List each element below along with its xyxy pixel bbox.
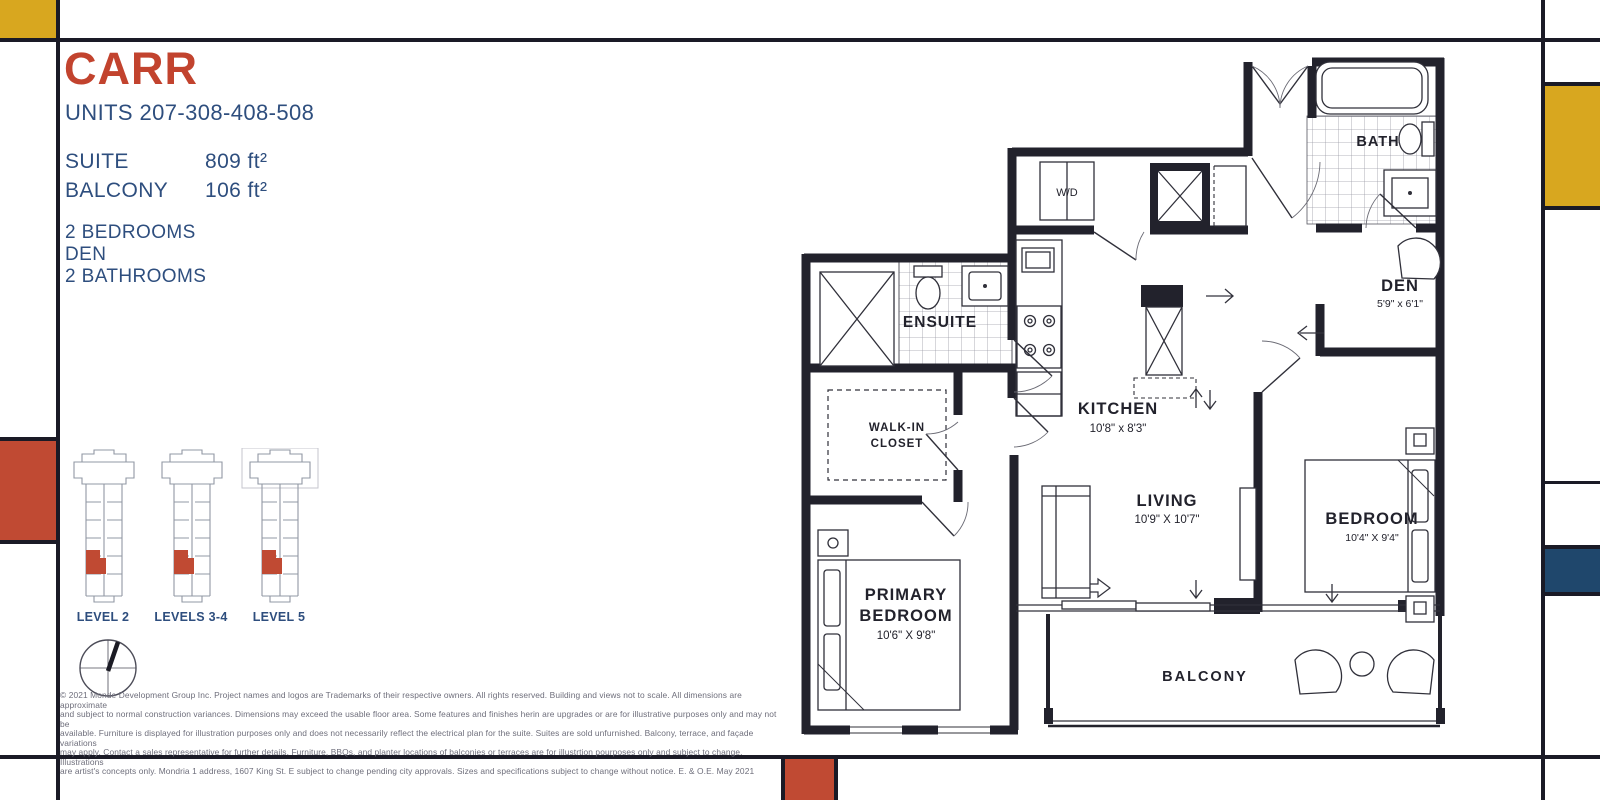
room-label-living: LIVING	[1136, 492, 1197, 510]
keyplan-level-2	[74, 450, 134, 602]
units-line: UNITS 207-308-408-508	[65, 100, 314, 126]
room-label-wd: W/D	[1056, 187, 1077, 199]
mondrian-square-yellow-right	[1545, 82, 1600, 210]
frame-line-left	[56, 0, 60, 800]
mondrian-square-blue-right	[1545, 545, 1600, 596]
feature-list: 2 BEDROOMS DEN 2 BATHROOMS	[65, 222, 206, 288]
keyplan-label-level-5: LEVEL 5	[236, 610, 322, 624]
den-chair	[1398, 238, 1440, 279]
balcony-chairs	[1295, 650, 1434, 694]
bathtub	[1316, 62, 1428, 114]
keyplan-diagrams	[64, 448, 324, 606]
room-label-primary-line1: PRIMARY	[865, 586, 947, 604]
room-dims-living: 10'9" X 10'7"	[1135, 514, 1200, 526]
sofa	[1042, 486, 1090, 598]
room-label-bath: BATH	[1356, 134, 1399, 150]
disclaimer-line: may apply. Contact a sales representativ…	[60, 748, 778, 767]
feature-den: DEN	[65, 244, 206, 266]
walkin-closet-outline	[828, 390, 946, 480]
kitchen-counter	[1016, 240, 1062, 416]
balcony-table	[1350, 652, 1374, 676]
disclaimer-line: available. Furniture is displayed for il…	[60, 729, 778, 748]
room-label-kitchen: KITCHEN	[1078, 400, 1158, 418]
keyplan-label-levels-3-4: LEVELS 3-4	[148, 610, 234, 624]
ensuite-sink	[962, 266, 1008, 306]
room-label-walkin-line1: WALK-IN	[869, 422, 925, 434]
room-label-walkin-line2: CLOSET	[871, 438, 924, 450]
balcony-area-value: 106 ft²	[205, 179, 267, 203]
area-stats: SUITE 809 ft² BALCONY 106 ft²	[65, 150, 267, 208]
balcony-area-row: BALCONY 106 ft²	[65, 179, 267, 203]
feature-bathrooms: 2 BATHROOMS	[65, 266, 206, 288]
room-dims-kitchen: 10'8" x 8'3"	[1090, 423, 1147, 435]
suite-area-label: SUITE	[65, 150, 205, 174]
mondrian-square-red-left	[0, 437, 56, 544]
bath-sink	[1384, 170, 1436, 216]
elevator-shaft	[1150, 163, 1210, 229]
kitchen-island	[1134, 285, 1196, 398]
keyplan-label-level-2: LEVEL 2	[60, 610, 146, 624]
legal-disclaimer: © 2021 Monde Development Group Inc. Proj…	[60, 691, 778, 777]
entry-closet	[1214, 166, 1246, 226]
room-label-den: DEN	[1381, 277, 1419, 295]
room-dims-den: 5'9" x 6'1"	[1377, 298, 1423, 310]
room-dims-bedroom: 10'4" X 9'4"	[1345, 532, 1399, 544]
ensuite-toilet	[914, 266, 942, 309]
mondrian-square-yellow-topleft	[0, 0, 56, 38]
room-dims-primary: 10'6" X 9'8"	[877, 630, 936, 642]
suite-area-row: SUITE 809 ft²	[65, 150, 267, 174]
keyplan-levels-3-4	[162, 450, 222, 602]
tv-console	[1240, 488, 1256, 580]
page-title: CARR	[64, 46, 198, 91]
room-label-ensuite: ENSUITE	[903, 314, 977, 331]
disclaimer-line: are artist's concepts only. Mondria 1 ad…	[60, 767, 778, 777]
disclaimer-line: © 2021 Monde Development Group Inc. Proj…	[60, 691, 778, 710]
room-label-balcony: BALCONY	[1162, 669, 1248, 685]
bath-toilet	[1399, 122, 1434, 156]
suite-area-value: 809 ft²	[205, 150, 267, 174]
room-label-bedroom: BEDROOM	[1325, 510, 1418, 528]
balcony-area-label: BALCONY	[65, 179, 205, 203]
primary-nightstand	[818, 530, 848, 556]
keyplan-level-5	[242, 448, 318, 602]
shower	[820, 272, 894, 366]
disclaimer-line: and subject to normal construction varia…	[60, 710, 778, 729]
feature-bedrooms: 2 BEDROOMS	[65, 222, 206, 244]
floorplan-sheet: { "header": { "title": "CARR", "units": …	[0, 0, 1600, 800]
mondrian-square-red-bottom	[781, 759, 838, 800]
frame-line-right-segment	[1545, 481, 1600, 484]
floorplan-drawing: BATH W/D ENSUITE DEN 5'9" x 6'1" WALK-IN…	[780, 40, 1460, 750]
room-label-primary-line2: BEDROOM	[859, 607, 952, 625]
